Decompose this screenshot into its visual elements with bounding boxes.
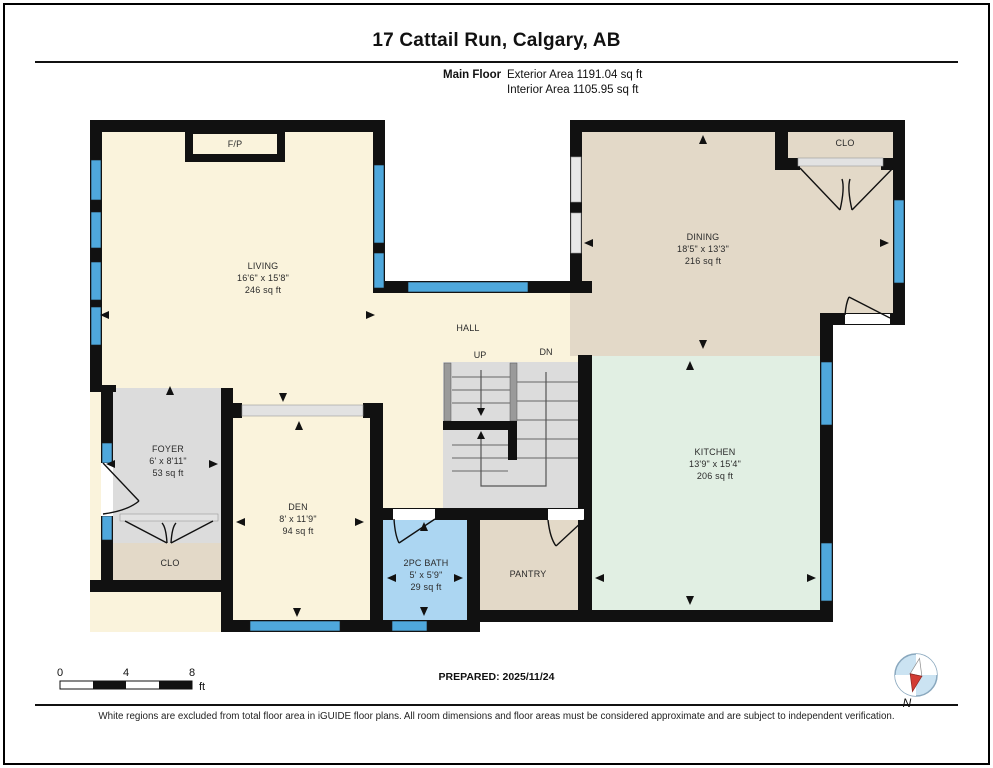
wall <box>570 120 905 132</box>
foyer-dims: 6' x 8'11" <box>149 456 187 466</box>
wall <box>221 388 233 632</box>
kitchen-area: 206 sq ft <box>697 471 734 481</box>
living-area: 246 sq ft <box>245 285 282 295</box>
compass-north-label: N <box>903 696 912 710</box>
pantry-floor <box>467 520 578 610</box>
wall <box>467 610 833 622</box>
window <box>250 621 340 631</box>
living-label: LIVING <box>248 261 279 271</box>
foyer-label: FOYER <box>152 444 184 454</box>
disclaimer-text: White regions are excluded from total fl… <box>0 711 993 722</box>
window <box>91 212 101 248</box>
hall-label: HALL <box>456 323 479 333</box>
prepared-date: PREPARED: 2025/11/24 <box>0 671 993 683</box>
window <box>91 160 101 200</box>
foyer-area: 53 sq ft <box>152 468 183 478</box>
kitchen-label: KITCHEN <box>695 447 736 457</box>
den-area: 94 sq ft <box>282 526 313 536</box>
bath-dims: 5' x 5'9" <box>410 570 443 580</box>
floor-plan-canvas: LIVING 16'6" x 15'8" 246 sq ft DINING 18… <box>0 0 993 768</box>
door-opening <box>393 509 435 520</box>
den-dims: 8' x 11'9" <box>279 514 317 524</box>
window <box>374 165 384 243</box>
wall <box>221 403 242 418</box>
stair-railing <box>510 363 517 421</box>
window <box>374 253 384 288</box>
window <box>894 200 904 283</box>
closet-door-track <box>798 158 883 166</box>
dining-area: 216 sq ft <box>685 256 722 266</box>
wall <box>90 385 116 392</box>
floor-plan-page: 17 Cattail Run, Calgary, AB Main Floor E… <box>0 0 993 768</box>
closet-upper-label: CLO <box>835 138 854 148</box>
window <box>392 621 427 631</box>
closet-door-track <box>120 514 218 521</box>
exterior-notch <box>833 325 905 356</box>
door-opening <box>548 509 584 520</box>
kitchen-floor <box>580 356 833 622</box>
window <box>571 213 581 253</box>
window <box>821 543 832 601</box>
fireplace-label: F/P <box>228 139 243 149</box>
wall <box>570 120 582 292</box>
window <box>102 443 112 463</box>
wall <box>508 421 517 460</box>
window <box>91 262 101 300</box>
wall-opening <box>242 405 363 416</box>
window <box>91 307 101 345</box>
pantry-label: PANTRY <box>510 569 547 579</box>
wall <box>90 580 233 592</box>
window <box>821 362 832 425</box>
living-dims: 16'6" x 15'8" <box>237 273 289 283</box>
stairs-down-label: DN <box>540 347 553 357</box>
bath-label: 2PC BATH <box>404 558 449 568</box>
wall <box>443 421 510 430</box>
closet-lower-label: CLO <box>160 558 179 568</box>
dining-label: DINING <box>687 232 720 242</box>
wall <box>775 120 788 170</box>
wall <box>578 355 592 622</box>
door-opening <box>845 314 890 324</box>
footer-divider <box>35 704 958 706</box>
dining-dims: 18'5" x 13'3" <box>677 244 729 254</box>
den-label: DEN <box>288 502 308 512</box>
stair-railing <box>444 363 451 421</box>
window <box>102 516 112 540</box>
window <box>408 282 528 292</box>
kitchen-dims: 13'9" x 15'4" <box>689 459 741 469</box>
bath-area: 29 sq ft <box>410 582 441 592</box>
window <box>571 157 581 202</box>
stairs-up-label: UP <box>474 350 487 360</box>
